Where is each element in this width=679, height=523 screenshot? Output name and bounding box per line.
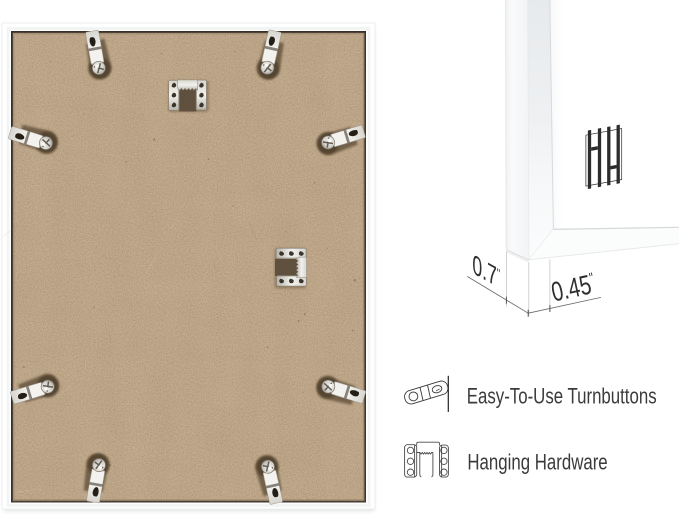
svg-text:0.45": 0.45" xyxy=(549,269,599,308)
svg-text:Hanging Hardware: Hanging Hardware xyxy=(467,451,607,476)
svg-text:Easy-To-Use Turnbuttons: Easy-To-Use Turnbuttons xyxy=(467,384,657,409)
